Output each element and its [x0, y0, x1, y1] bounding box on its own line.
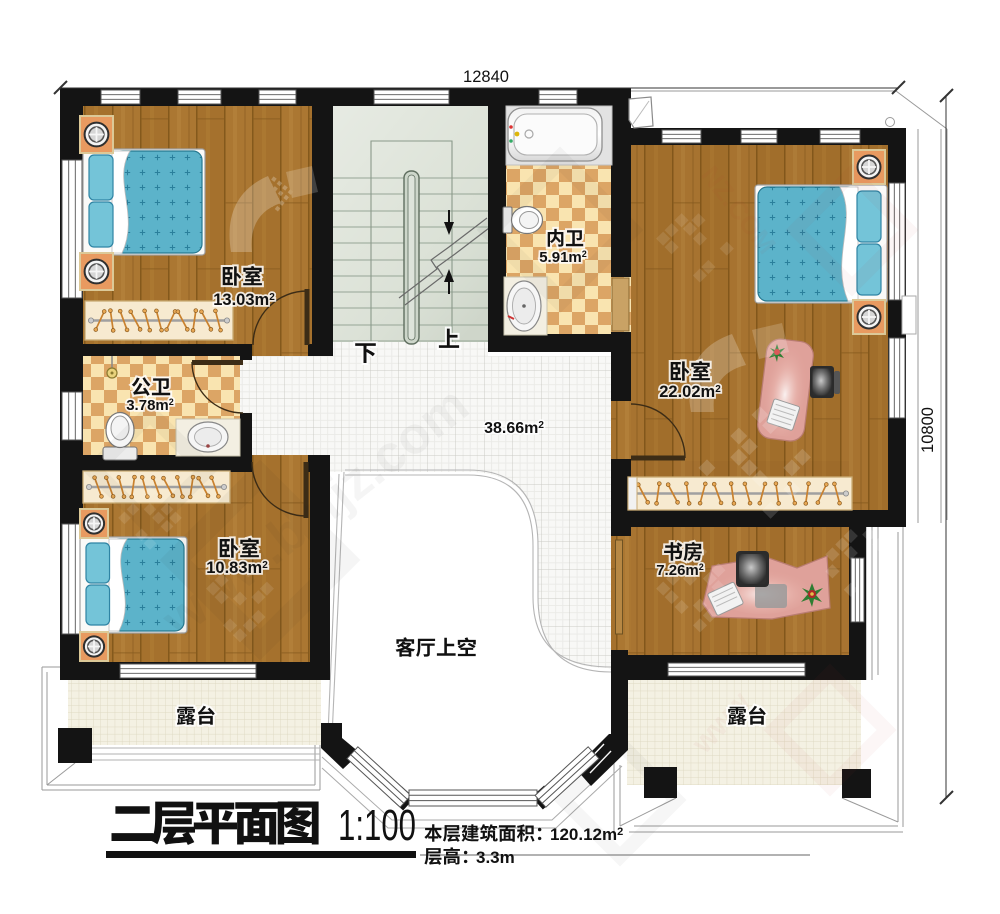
svg-text:12840: 12840 — [463, 68, 509, 86]
svg-text:10800: 10800 — [919, 407, 937, 453]
svg-text:10.83m2: 10.83m2 — [206, 559, 268, 577]
svg-text:22.02m2: 22.02m2 — [659, 383, 721, 401]
svg-text:1:100: 1:100 — [338, 801, 416, 850]
svg-text:3.3m: 3.3m — [476, 848, 515, 867]
svg-text:7.26m2: 7.26m2 — [656, 562, 704, 579]
svg-text:5.91m2: 5.91m2 — [539, 249, 587, 266]
svg-text:3.78m2: 3.78m2 — [126, 397, 174, 414]
svg-text:38.66m2: 38.66m2 — [484, 420, 544, 437]
svg-text:13.03m2: 13.03m2 — [213, 291, 275, 309]
svg-text:120.12m2: 120.12m2 — [550, 825, 623, 844]
